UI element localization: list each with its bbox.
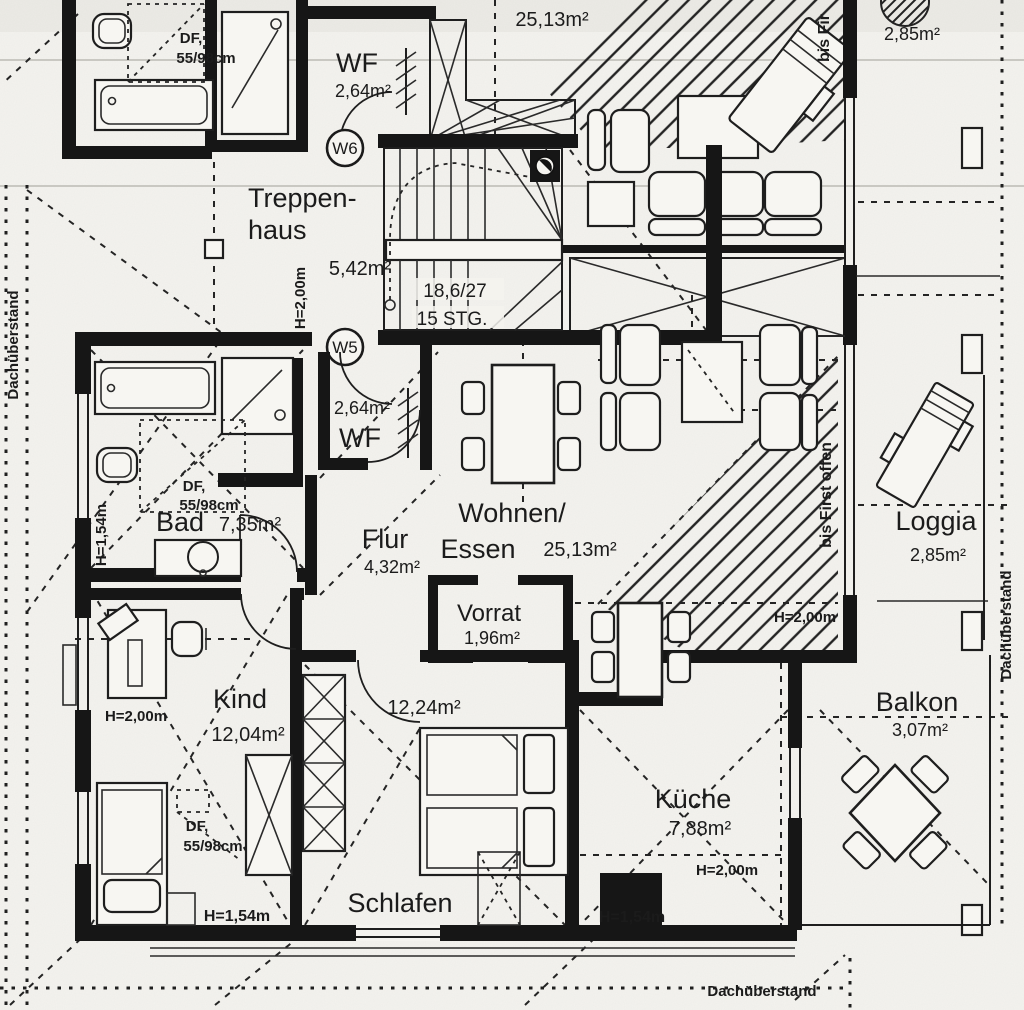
toilet-upper: [93, 14, 131, 48]
chair: [668, 612, 690, 642]
df-kind-size: 55/98cm: [183, 838, 242, 855]
height-200-kueche: H=2,00m: [696, 862, 758, 879]
desk-chair: [172, 622, 202, 656]
kind-wardrobe: [246, 755, 292, 875]
df-bad-label: DF,: [183, 478, 206, 495]
nightstand: [524, 808, 554, 866]
chair: [592, 612, 614, 642]
stair-landing-rail: [386, 240, 562, 260]
loggia-area: 2,85m²: [910, 545, 966, 565]
height-154-bad: H=1,54m: [93, 504, 110, 566]
side-table: [588, 182, 634, 226]
armchair-back: [601, 393, 616, 450]
chair: [462, 438, 484, 470]
armchair-back: [802, 327, 817, 384]
sofa-cushion: [765, 172, 821, 216]
upper-loggia-area-label: 2,85m²: [884, 24, 940, 44]
dachueberstand-right: Dachüberstand: [998, 570, 1015, 679]
armchair-seat: [760, 393, 800, 450]
sofa-back: [649, 219, 705, 235]
chair: [558, 382, 580, 414]
sofa-cushion: [649, 172, 705, 216]
wf-main-name: WF: [339, 423, 381, 453]
balkon-name: Balkon: [876, 687, 959, 717]
dachueberstand-left: Dachüberstand: [5, 290, 22, 399]
schlafen-wardrobe: [303, 675, 345, 851]
armchair-seat: [620, 393, 660, 450]
schlafen-area: 12,24m²: [387, 697, 461, 719]
df-dormer-label: DF,: [180, 30, 203, 47]
wohnen-area: 25,13m²: [543, 539, 617, 561]
df-kind-label: DF,: [186, 818, 209, 835]
loggia-post: [962, 612, 982, 650]
balkon-post: [962, 905, 982, 935]
vorrat-name: Vorrat: [457, 600, 521, 627]
loggia-post: [962, 335, 982, 373]
schlafen-name: Schlafen: [347, 888, 452, 918]
df-bad-size: 55/98cm: [179, 497, 238, 514]
loggia-post: [962, 128, 982, 168]
bad-area: 7,35m²: [219, 514, 282, 536]
washbasin: [155, 540, 241, 576]
balkon-furniture: [840, 754, 949, 870]
armchair-back: [802, 395, 817, 450]
upper-wohnen-area-label: 25,13m²: [515, 9, 589, 31]
shower: [222, 358, 293, 434]
armchair-back: [588, 110, 605, 170]
wohnen-name-2: Essen: [440, 534, 515, 564]
armchair-seat: [620, 325, 660, 385]
height-200-wohnen: H=2,00m: [774, 609, 836, 626]
nightstand: [524, 735, 554, 793]
chimney: [530, 150, 560, 182]
unit-circle-w5: W5: [327, 329, 363, 365]
stair-riser-tread: 18,6/27: [423, 281, 486, 302]
floor-plan-page: W6 W5: [0, 0, 1024, 1010]
kueche-area: 7,88m²: [669, 818, 732, 840]
pillow: [104, 880, 160, 912]
wf-upper-name: WF: [336, 48, 378, 78]
dachueberstand-bottom: Dachüberstand: [707, 983, 816, 1000]
wf-upper-area: 2,64m²: [335, 81, 391, 101]
unit-circle-w6: W6: [327, 130, 363, 166]
height-200-stair: H=2,00m: [292, 267, 309, 329]
height-200-kind: H=2,00m: [105, 708, 167, 725]
wf-main-area: 2,64m²: [334, 398, 390, 418]
height-154-schlafen-wall: H=1,54m: [204, 908, 270, 925]
floor-plan-drawing: W6 W5: [0, 0, 1024, 1010]
chair: [592, 652, 614, 682]
unit-w5-label: W5: [332, 338, 358, 357]
kueche-name: Küche: [655, 784, 732, 814]
chair: [668, 652, 690, 682]
bis-first-top: bis Fir: [816, 14, 833, 62]
vorrat-area: 1,96m²: [464, 628, 520, 648]
armchair-back: [601, 325, 616, 383]
height-154-kueche-wall: H=1,54m: [599, 909, 665, 926]
post-box: [205, 240, 223, 258]
treppenhaus-name-1: Treppen-: [248, 183, 357, 213]
sofa-back: [765, 219, 821, 235]
wohnen-name-1: Wohnen/: [458, 498, 566, 528]
df-dormer-size: 55/98cm: [176, 50, 235, 67]
window-schlafen: [356, 925, 440, 941]
kind-name: Kind: [213, 684, 267, 714]
chair: [462, 382, 484, 414]
armchair-seat: [760, 325, 800, 385]
balkon-area: 3,07m²: [892, 720, 948, 740]
treppenhaus-area: 5,42m²: [329, 258, 392, 280]
unit-w6-label: W6: [332, 139, 358, 158]
bis-first-offen: bis First offen: [818, 442, 835, 548]
bathtub: [95, 362, 215, 414]
kind-area: 12,04m²: [211, 724, 285, 746]
kitchen-table: [618, 603, 662, 697]
stair-steps: 15 STG.: [417, 309, 488, 330]
bathtub-upper: [95, 80, 213, 130]
loggia-name: Loggia: [895, 506, 977, 536]
flur-area: 4,32m²: [364, 557, 420, 577]
chair: [558, 438, 580, 470]
armchair-seat: [611, 110, 649, 172]
treppenhaus-name-2: haus: [248, 215, 307, 245]
flur-name: Flur: [362, 524, 409, 554]
dining-table: [492, 365, 554, 483]
double-bed: [420, 728, 568, 875]
kind-bed: [97, 783, 167, 925]
